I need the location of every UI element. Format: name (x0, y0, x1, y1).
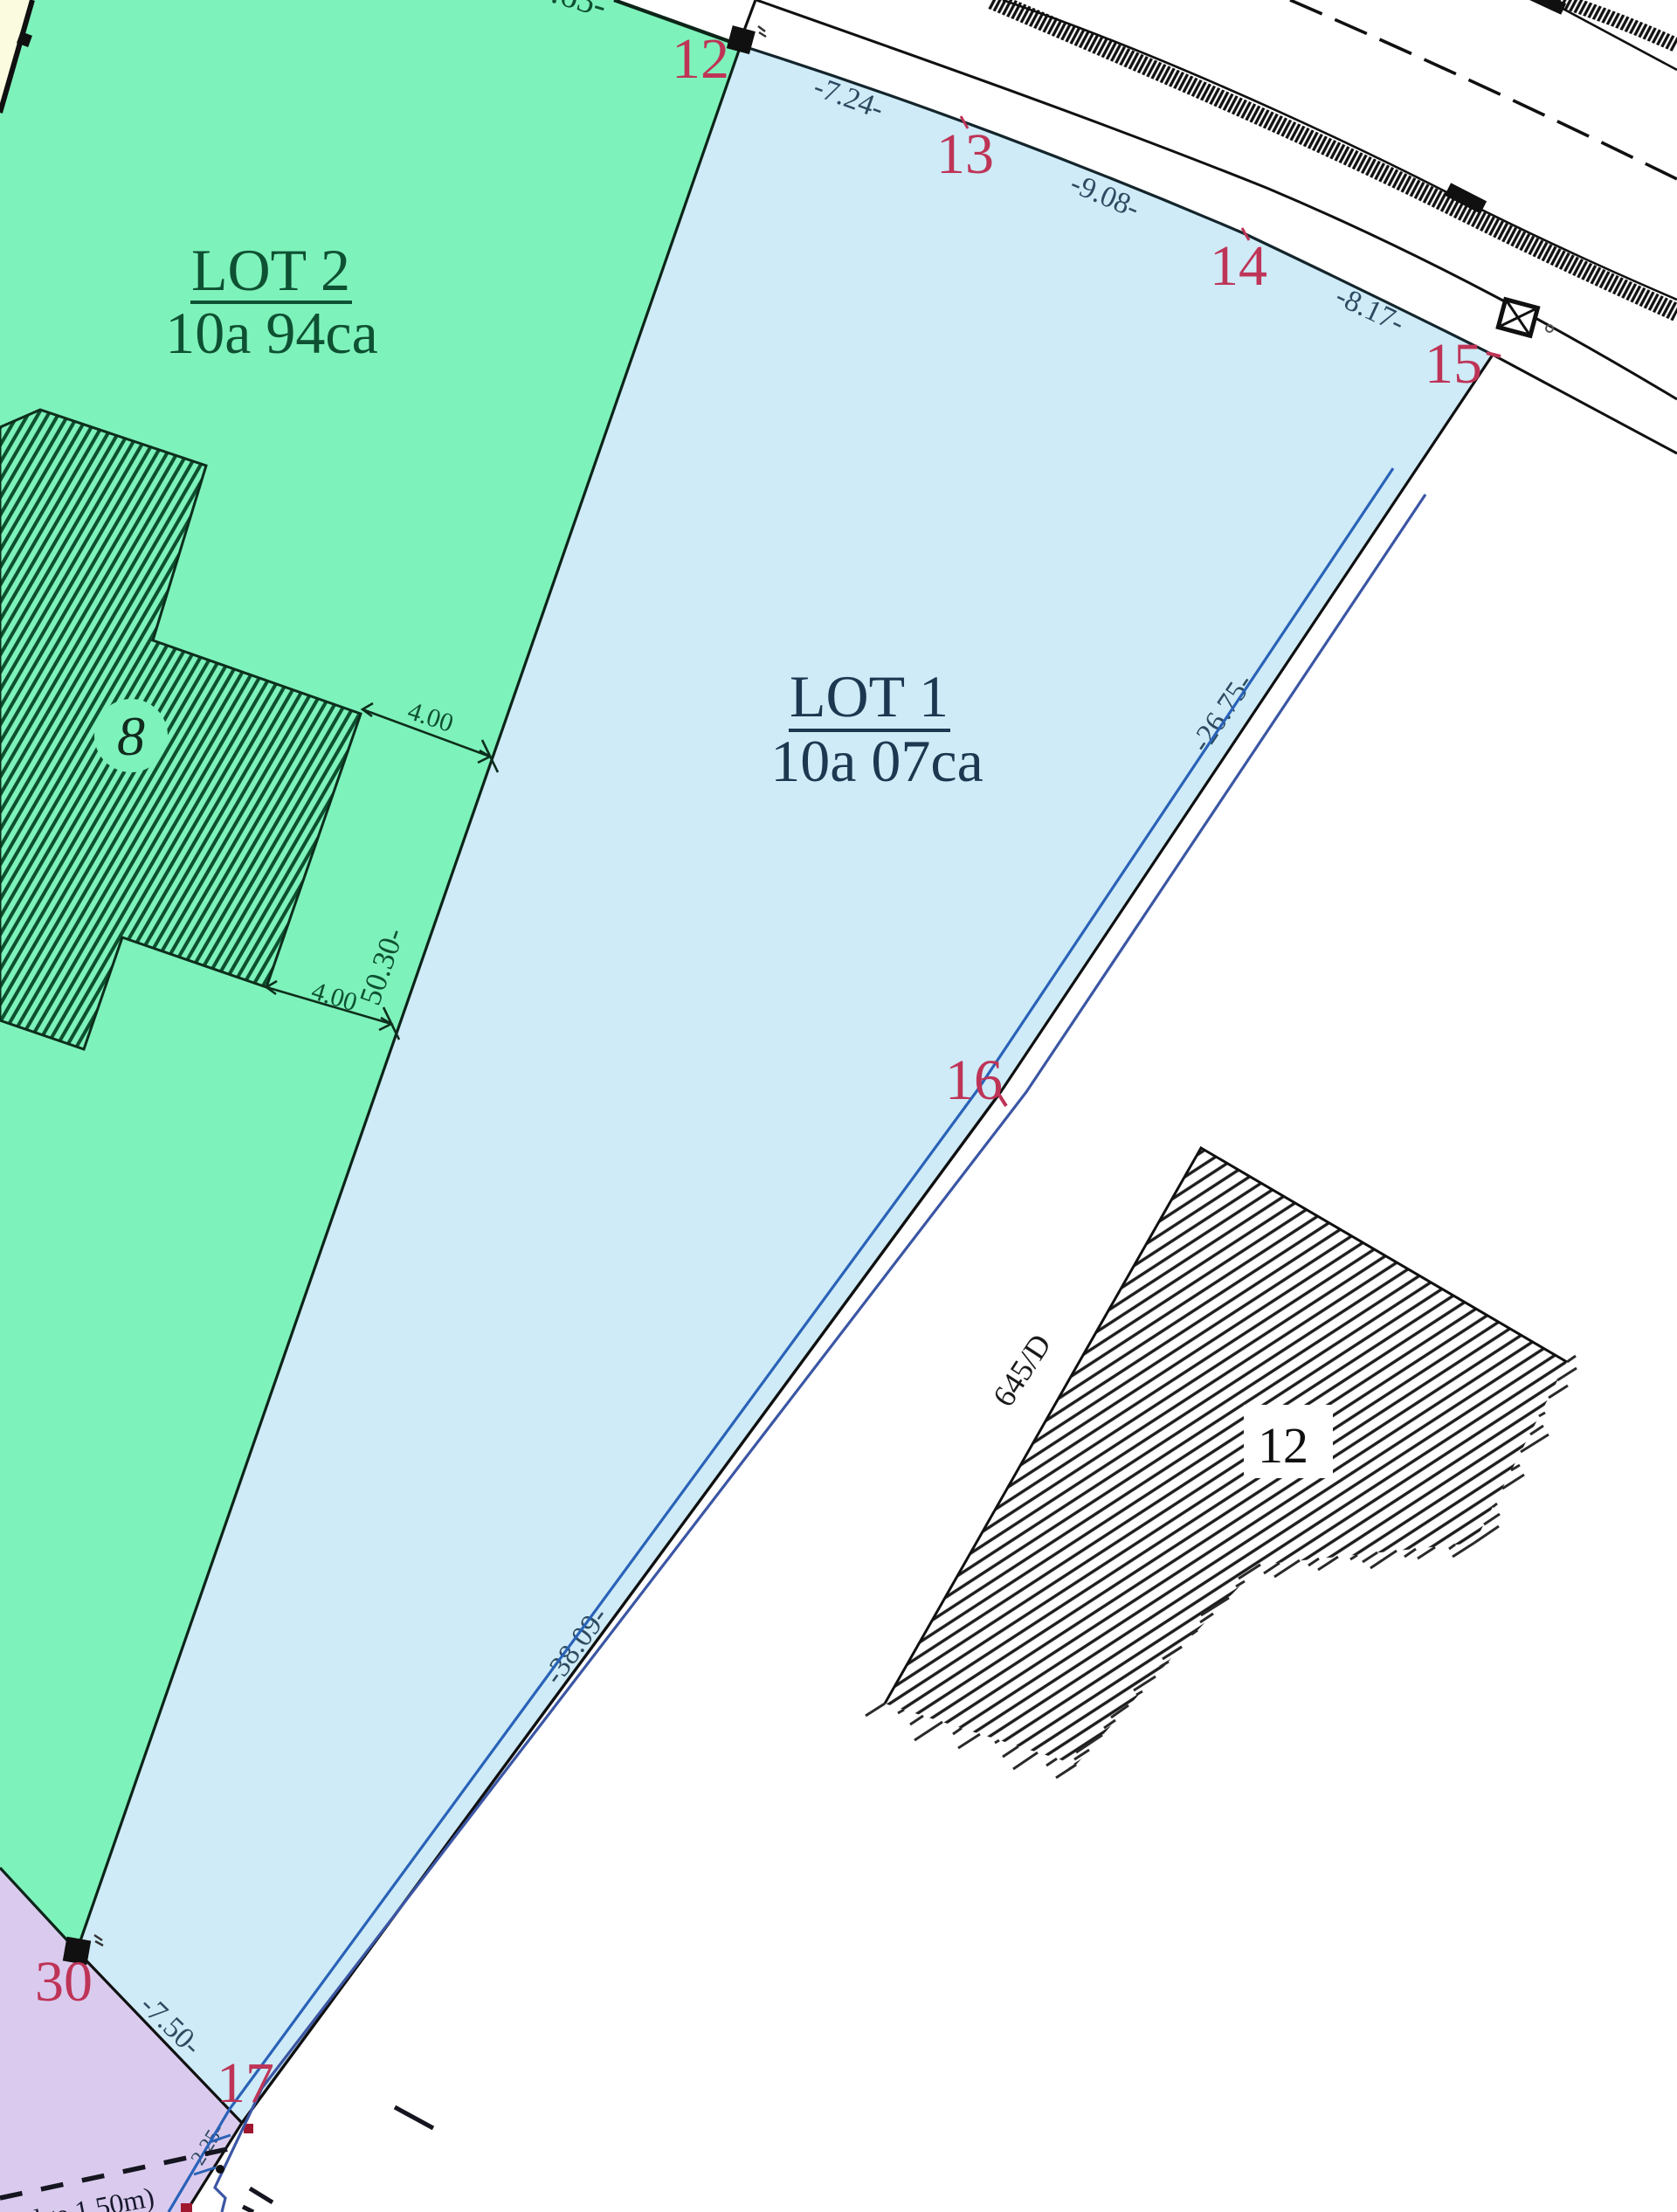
svg-text:16: 16 (945, 1048, 1003, 1112)
svg-text:15: 15 (1425, 332, 1482, 396)
svg-text:8: 8 (117, 705, 145, 767)
svg-text:LOT 2: LOT 2 (191, 237, 350, 303)
svg-text:10a 07ca: 10a 07ca (770, 728, 983, 794)
svg-text:17: 17 (217, 2051, 274, 2115)
svg-text:10a 94ca: 10a 94ca (165, 300, 378, 366)
svg-text:13: 13 (936, 122, 994, 186)
svg-text:LOT 1: LOT 1 (790, 663, 949, 729)
svg-text:14: 14 (1210, 234, 1267, 298)
svg-text:12: 12 (1258, 1417, 1308, 1474)
svg-text:12: 12 (672, 27, 729, 91)
svg-text:30: 30 (35, 1950, 93, 2014)
